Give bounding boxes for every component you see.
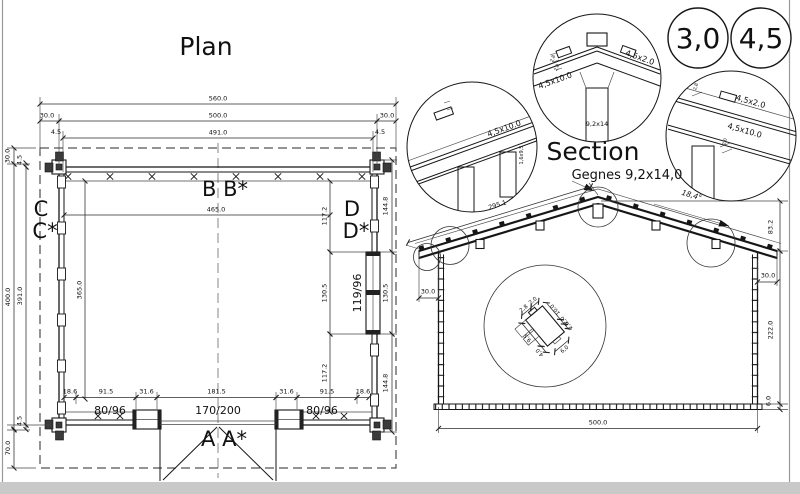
section-floor [434, 404, 762, 410]
dim-bottom-4: 31.6 [279, 388, 293, 396]
window-bottom-right [275, 410, 303, 429]
label-window-side: 119/96 [351, 274, 364, 313]
dim-bottom-0: 18.6 [63, 388, 77, 396]
dim-top-wall: 500.0 [209, 112, 228, 120]
dim-top-overhang-left: 30.0 [40, 112, 54, 120]
section-view: Section Gegnes 9,2x14,0 [406, 137, 788, 433]
dim-bottom-3: 181.5 [207, 388, 226, 396]
dim-right-inner-1: 130.5 [321, 284, 329, 303]
window-bottom-left [133, 410, 161, 429]
profile-dim-tongue-side: 2,0 [528, 296, 539, 307]
technical-drawing-canvas: Plan [0, 0, 800, 494]
dim-inner-width: 465.0 [207, 206, 226, 214]
log-profile-detail: 2,8 2,0 10.0 2,0 2,0 9,5 4,0 6,0 [507, 289, 584, 368]
dim-overhang-left: 30.0 [421, 288, 435, 296]
drawing-sheet: Plan [0, 0, 800, 494]
marker-c: C [34, 197, 49, 221]
plan-openings [133, 252, 380, 481]
dim-left-log-bottom: 4.5 [16, 416, 24, 426]
dim-right-outer-0: 144.8 [382, 197, 390, 216]
thickness-badges: 3,0 4,5 [668, 8, 791, 68]
plan-dims-bottom: 18.6 91.5 31.6 181.5 31.6 91.5 18.6 80/9… [63, 388, 370, 418]
dim-top-log-right: 4.5 [375, 128, 385, 136]
marker-d-star: D* [343, 219, 370, 243]
ridge-note: Gegnes 9,2x14,0 [572, 168, 683, 183]
dim-bottom-2: 31.6 [139, 388, 153, 396]
dim-bottom-5: 91.5 [320, 388, 334, 396]
section-title: Section [547, 137, 640, 166]
dim-overhang-right: 30.0 [761, 272, 775, 280]
plan-dims-inner: 465.0 [64, 206, 330, 216]
section-dims: 295.1 18,4° 83.2 30.0 30.0 222.0 6.0 500… [406, 183, 788, 433]
profile-dim-log-back: 9,5 [523, 332, 534, 343]
plan-title: Plan [179, 32, 232, 61]
label-door: 170/200 [195, 404, 241, 417]
eave-detail-circle [407, 82, 537, 212]
badge-30: 3,0 [676, 22, 721, 55]
marker-a: A A* [201, 427, 247, 451]
label-window-right: 80/96 [306, 404, 338, 417]
ridge-detail: 4,5x10.0 4,5x2.0 9,2x14 2,8 2,0 [533, 14, 661, 142]
dim-floor-height: 6.0 [765, 396, 773, 406]
marker-d: D [344, 197, 360, 221]
dim-top-overhang-right: 30.0 [380, 112, 394, 120]
dim-bottom-1: 91.5 [99, 388, 113, 396]
slope-detail: 4,5x2.0 4,5x10.0 2,8 2,0 [666, 71, 796, 201]
label-window-left: 80/96 [94, 404, 126, 417]
dim-left-log-top: 4.5 [16, 155, 24, 165]
plan-view: Plan [4, 32, 398, 481]
dim-wall-height: 222.0 [767, 321, 775, 340]
ridge-rafter-label: 4,5x10.0 [537, 70, 573, 91]
badge-45: 4,5 [739, 22, 784, 55]
eave-rafter-label: 4,5x10.0 [486, 118, 522, 139]
dim-right-inner-0: 117.2 [321, 207, 329, 226]
profile-dim-bottom-step: 4,0 [535, 347, 546, 358]
marker-b: B B* [202, 177, 248, 201]
dim-left-overhang-top: 30.0 [4, 149, 12, 163]
dim-left-overall: 400.0 [4, 288, 12, 307]
dim-right-outer-2: 144.8 [382, 374, 390, 393]
eave-detail: 4,5x10.0 1,6x9,5 [402, 82, 542, 217]
dim-right-inner-2: 117.2 [321, 364, 329, 383]
eave-wall-log-label: 1,6x9,5 [519, 146, 525, 165]
marker-c-star: C* [32, 219, 57, 243]
ridge-beam-label: 9,2x14 [586, 120, 608, 128]
slope-batten-label: 4,5x2.0 [735, 93, 766, 110]
slope-dim2: 2,0 [721, 137, 729, 146]
dim-right-outer-1: 130.5 [382, 284, 390, 303]
window-right-wall [366, 252, 380, 334]
dim-top-inner: 491.0 [209, 129, 228, 137]
dim-bottom-6: 18.6 [356, 388, 370, 396]
bottom-bar [0, 482, 800, 494]
slope-detail-circle [666, 71, 796, 201]
ridge-batten-label: 4,5x2.0 [624, 48, 655, 67]
profile-dim-log-height: 10.0 [549, 302, 562, 316]
dim-left-inner: 365.0 [76, 281, 84, 300]
section-detail-circles [414, 187, 736, 387]
dim-left-wall: 391.0 [16, 287, 24, 306]
section-walls [434, 253, 762, 410]
dim-top-log-left: 4.5 [51, 128, 61, 136]
dim-gable-height: 83.2 [767, 220, 775, 234]
dim-section-width: 500.0 [589, 419, 608, 427]
dim-top-overall: 560.0 [209, 95, 228, 103]
detail-views: 4,5x10.0 1,6x9,5 4,5x10.0 4,5x2.0 [402, 8, 796, 217]
dim-roof-angle: 18,4° [681, 188, 703, 203]
dim-left-overhang-bottom: 70.0 [4, 441, 12, 455]
